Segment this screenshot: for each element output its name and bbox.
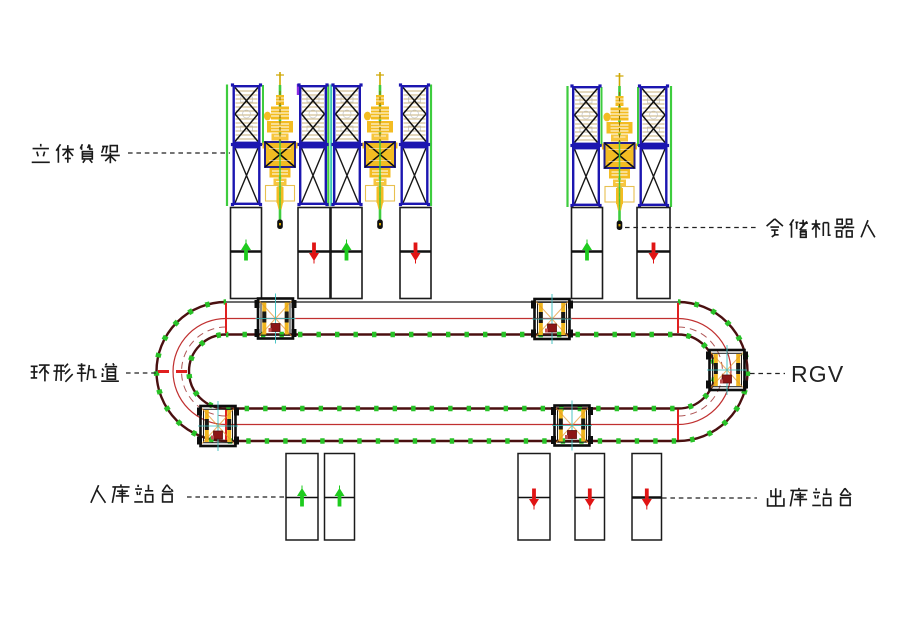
svg-text:RGV: RGV <box>791 361 844 387</box>
